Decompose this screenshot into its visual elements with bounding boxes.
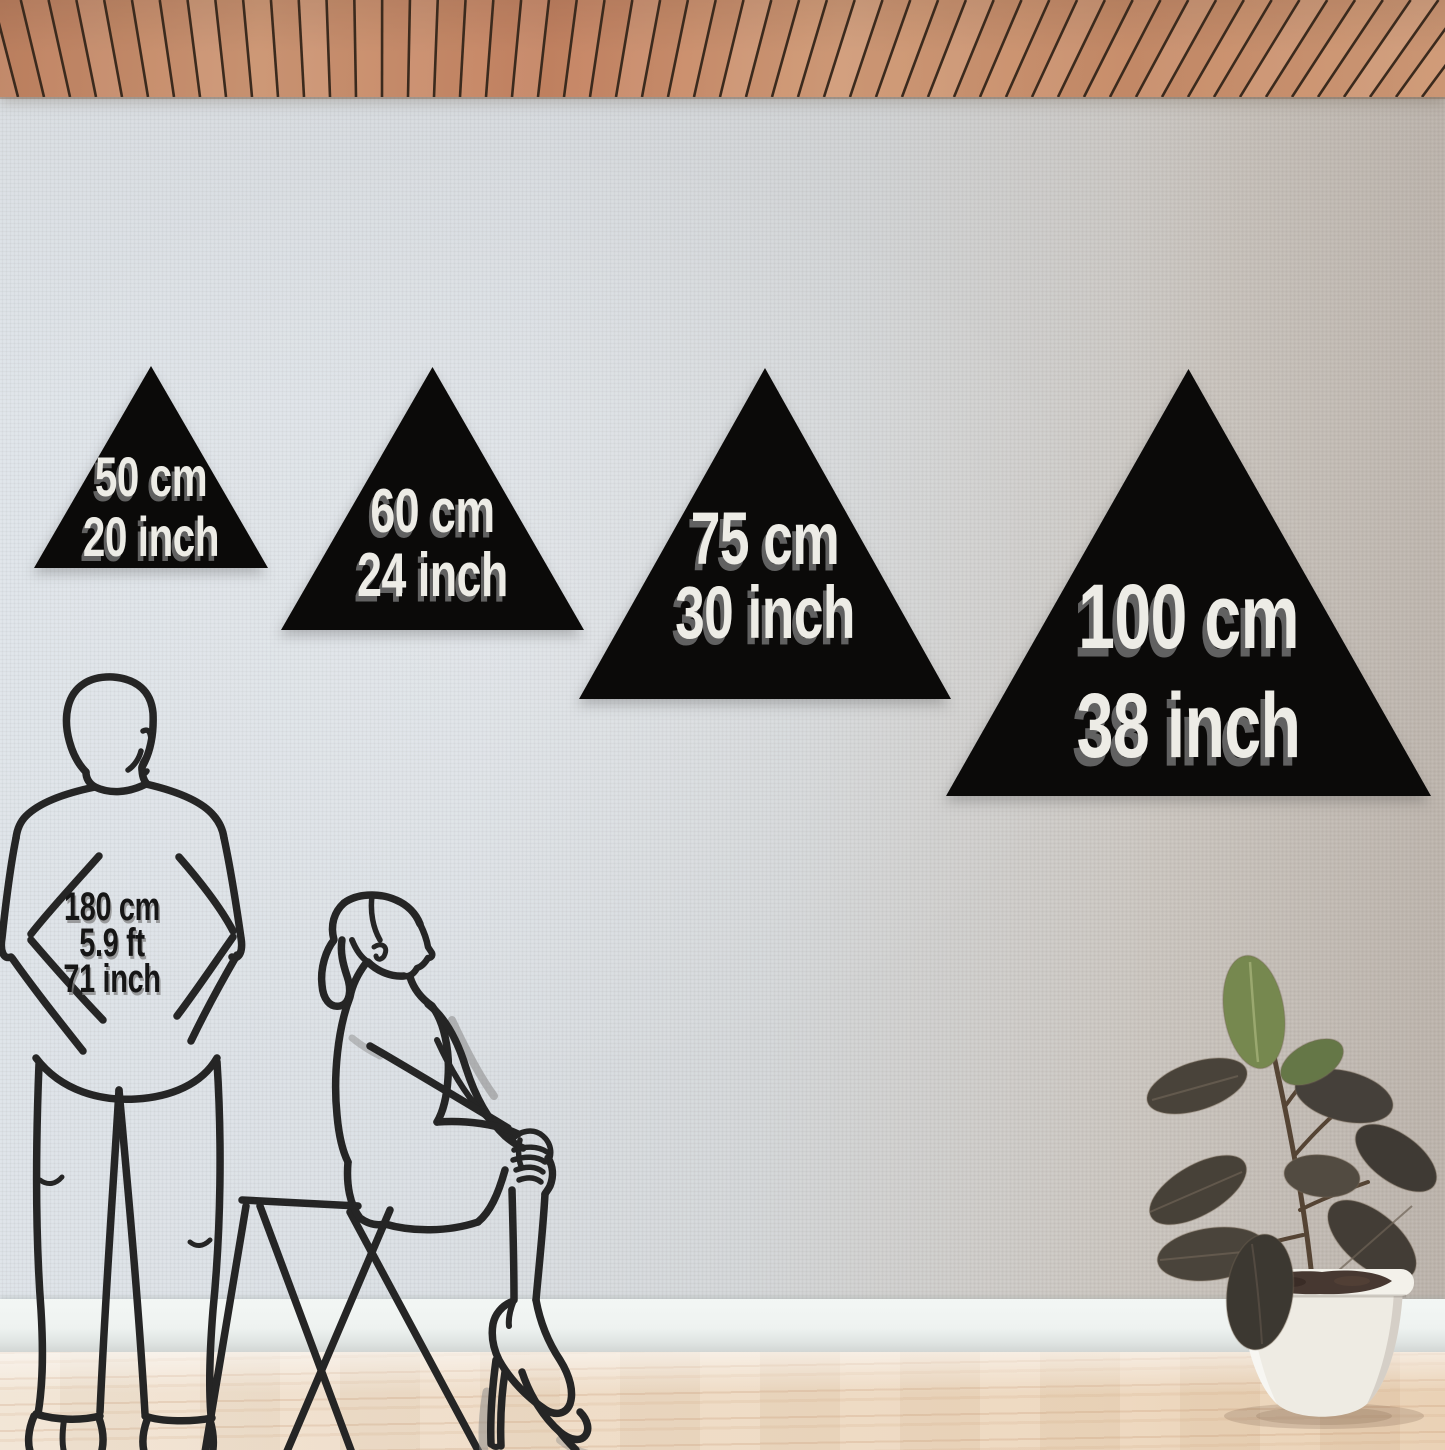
green-leaf-small [1273,1029,1351,1094]
room-scene: 50 cm 20 inch 60 cm 24 inch 75 cm 30 inc… [0,0,1445,1450]
size-label-cm: 100 cm [1014,563,1363,672]
person-height-cm: 180 cm [54,889,169,925]
size-triangle-60cm: 60 cm 24 inch [281,367,584,630]
pot-soil [1250,1270,1392,1294]
size-label: 50 cm 20 inch [67,447,235,567]
size-label-inch: 24 inch [323,544,541,608]
size-label-inch: 30 inch [631,576,899,650]
size-label-cm: 50 cm [67,447,235,507]
green-leaf-top [1215,951,1292,1073]
arm-shadow-line [352,1038,380,1056]
triangle-shape: 50 cm 20 inch [34,366,268,568]
clasped-hands [512,1131,551,1182]
wood-floor [0,1352,1445,1450]
size-triangle-75cm: 75 cm 30 inch [579,368,951,699]
size-label: 100 cm 38 inch [1014,563,1363,781]
ceiling-wood-slats [0,0,1445,97]
person-height-label: 180 cm 5.9 ft 71 inch [54,889,169,997]
size-label: 60 cm 24 inch [323,480,541,608]
plant-leaves [1139,951,1445,1295]
person-height-ft: 5.9 ft [54,925,169,961]
arm-shadow-line [452,1020,494,1096]
size-label-cm: 75 cm [631,502,899,576]
triangle-shape: 100 cm 38 inch [946,369,1431,796]
size-label: 75 cm 30 inch [631,502,899,650]
plant-stems [1228,983,1368,1278]
size-label-inch: 20 inch [67,507,235,567]
size-triangle-100cm: 100 cm 38 inch [946,369,1431,796]
size-label-cm: 60 cm [323,480,541,544]
size-label-inch: 38 inch [1014,672,1363,781]
ceiling-slat-lines [0,0,1445,97]
person-height-inch: 71 inch [54,961,169,997]
triangle-shape: 75 cm 30 inch [579,368,951,699]
woman-ear [374,945,386,959]
size-triangle-50cm: 50 cm 20 inch [34,366,268,568]
triangle-shape: 60 cm 24 inch [281,367,584,630]
baseboard [0,1299,1445,1352]
man-ear [141,730,151,773]
